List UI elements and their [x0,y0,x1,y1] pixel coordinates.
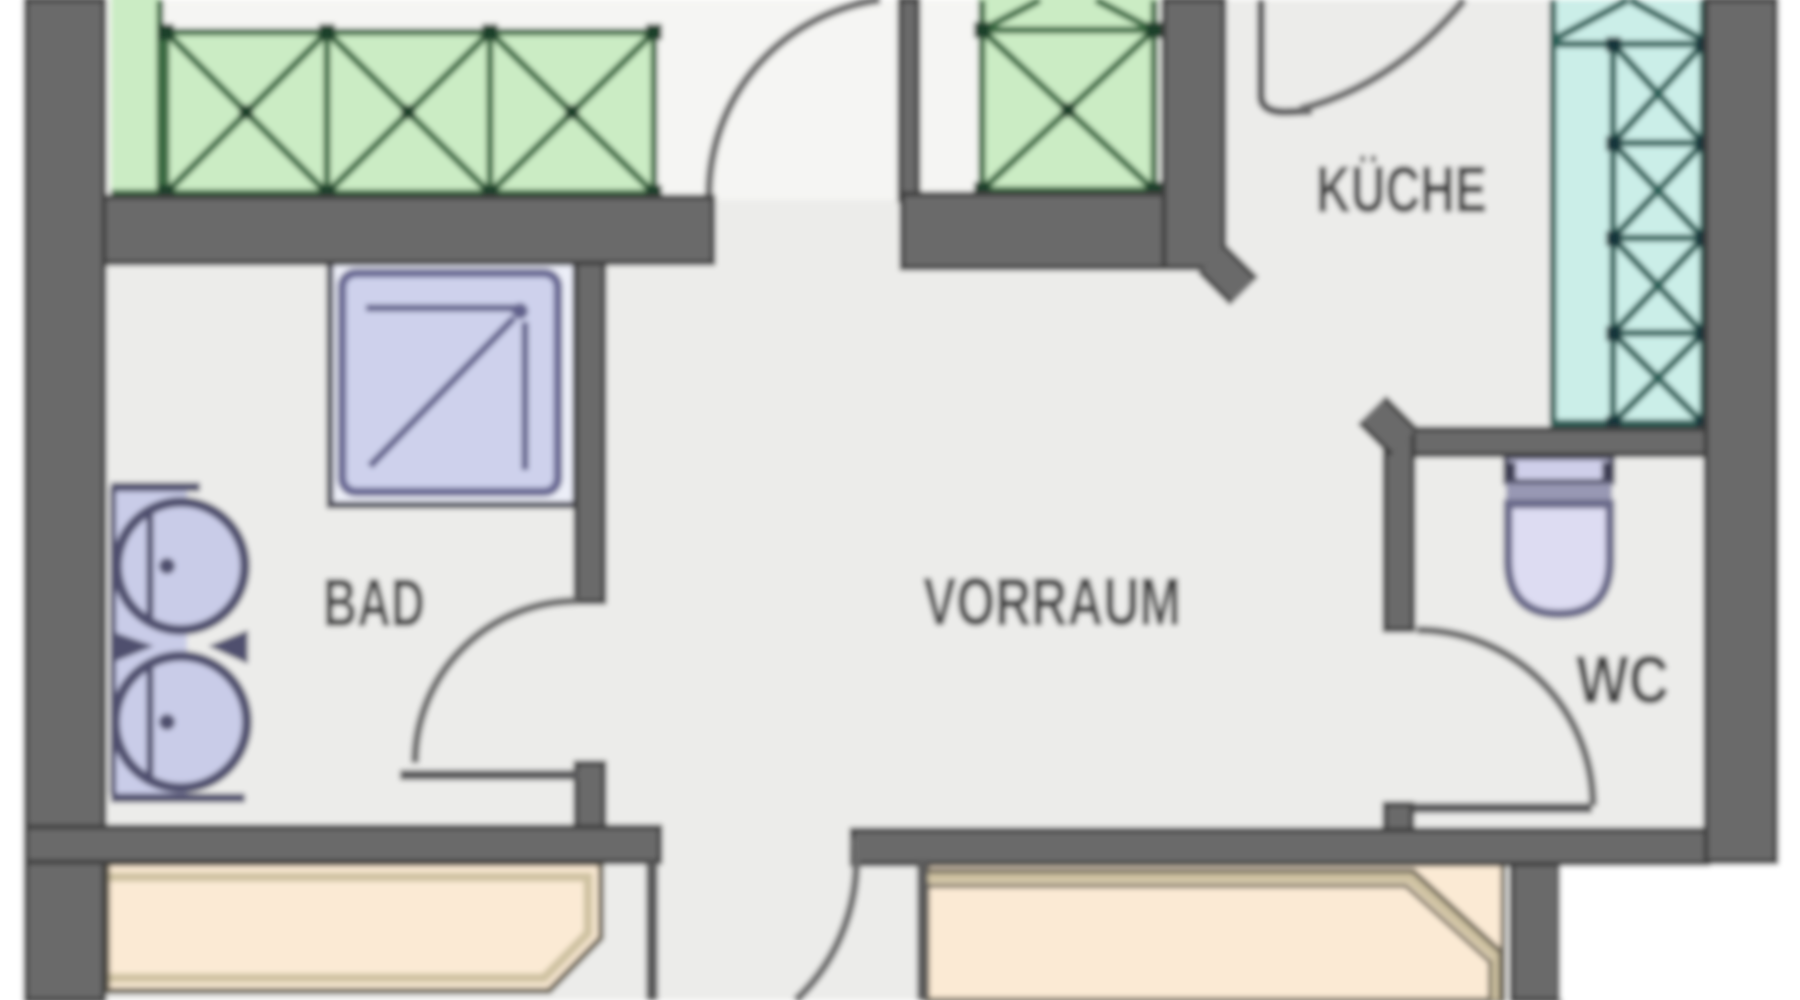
svg-text:VORRAUM: VORRAUM [923,564,1181,640]
svg-text:KÜCHE: KÜCHE [1316,152,1487,226]
svg-text:WC: WC [1576,642,1669,718]
svg-text:BAD: BAD [323,565,425,641]
